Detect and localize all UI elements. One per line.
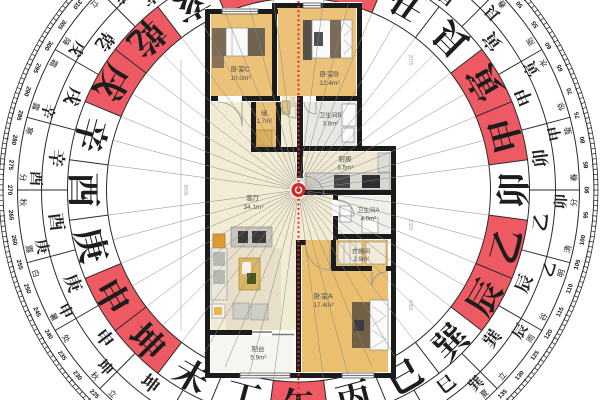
svg-text:B: B — [334, 70, 339, 79]
svg-text:9835: 9835 — [182, 184, 188, 195]
svg-text:3785: 3785 — [289, 96, 295, 107]
svg-text:4050: 4050 — [407, 299, 413, 310]
svg-text:A: A — [328, 292, 333, 301]
svg-text:B: B — [337, 112, 341, 119]
svg-text:95: 95 — [583, 211, 591, 219]
svg-text:2075: 2075 — [407, 54, 413, 65]
svg-text:275: 275 — [7, 159, 15, 170]
svg-text:17.4m²: 17.4m² — [313, 302, 334, 309]
svg-text:C: C — [245, 65, 251, 74]
svg-text:85: 85 — [582, 161, 590, 169]
svg-text:12.4m²: 12.4m² — [319, 80, 340, 87]
svg-text:10.0m²: 10.0m² — [230, 75, 251, 82]
svg-text:265: 265 — [7, 210, 15, 221]
svg-text:1320: 1320 — [407, 219, 413, 230]
svg-text:2.9m²: 2.9m² — [354, 256, 370, 263]
svg-text:90: 90 — [584, 186, 591, 193]
svg-text:270: 270 — [6, 185, 13, 196]
